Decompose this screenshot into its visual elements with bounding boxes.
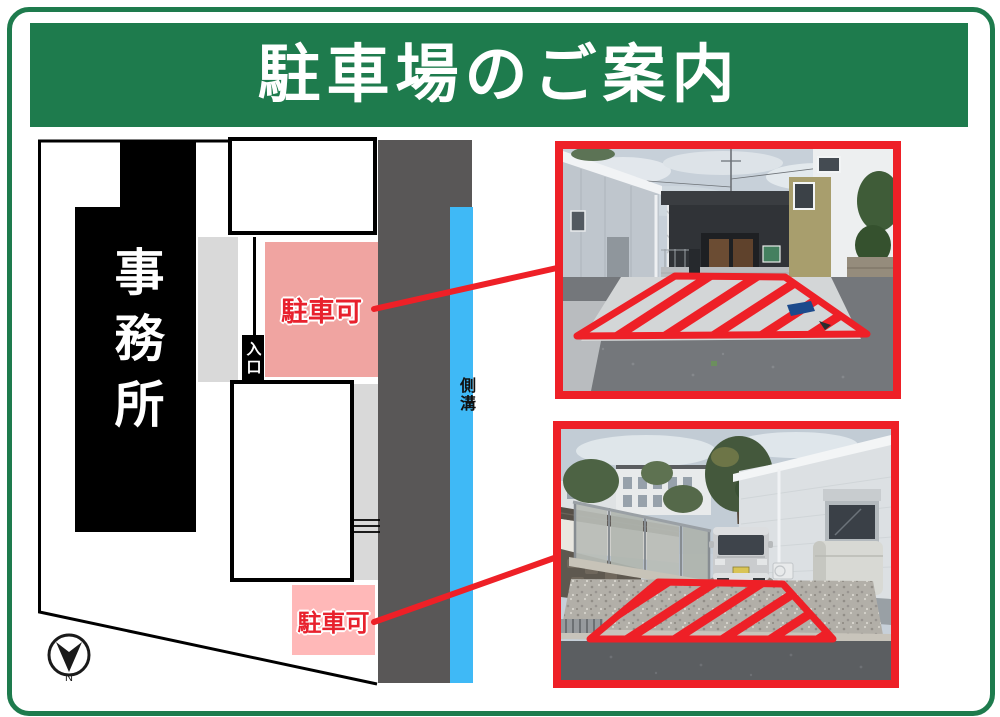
top-parking-label: 駐車可	[265, 242, 378, 377]
dark-house	[661, 191, 799, 277]
lower-building	[232, 382, 352, 580]
asphalt-foreground	[561, 641, 891, 680]
page-title: 駐車場のご案内	[258, 44, 741, 107]
entrance-label: 入口	[242, 336, 264, 382]
window-shutter-box	[823, 489, 881, 501]
parking-guide-flyer: 駐車場のご案内	[0, 0, 1000, 717]
green-signboard	[763, 246, 780, 262]
compass-icon	[49, 635, 89, 675]
office-label: 事務所	[75, 240, 196, 450]
upper-building	[230, 139, 375, 233]
gutter-strip	[450, 207, 473, 683]
lower-parking-photo-scene	[561, 429, 891, 680]
ac-unit	[773, 563, 793, 579]
compass-north-label: N	[57, 672, 81, 684]
lower-parking-photo	[553, 421, 899, 688]
gutter-label: 側溝	[450, 377, 473, 413]
upper-parking-photo-scene	[563, 149, 893, 391]
parked-van	[709, 527, 773, 585]
upper-parking-photo	[555, 141, 901, 399]
header-banner: 駐車場のご案内	[30, 23, 968, 127]
green-weed	[711, 361, 717, 366]
side-walkway-strip	[354, 384, 378, 580]
walkway-strip	[198, 237, 238, 382]
bottom-parking-label: 駐車可	[292, 585, 375, 655]
